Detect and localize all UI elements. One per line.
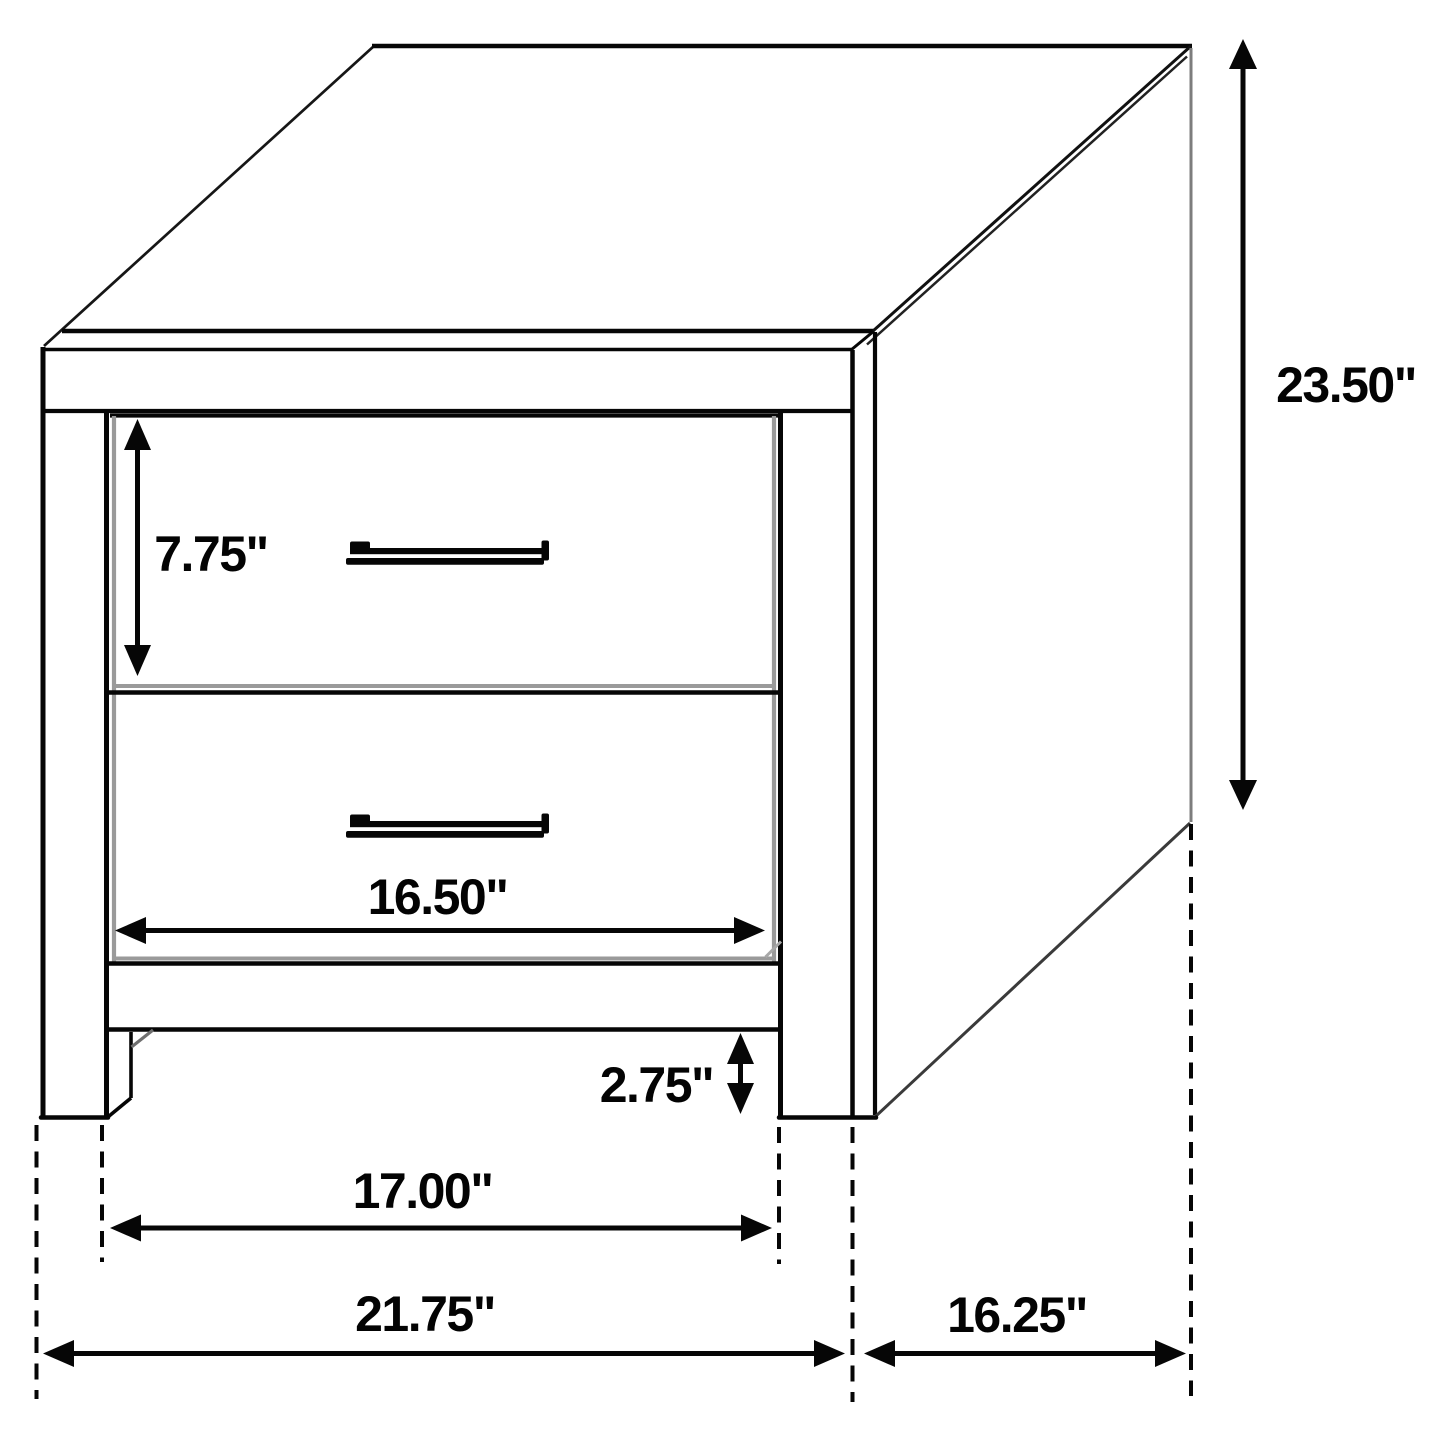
svg-text:17.00": 17.00": [353, 1163, 493, 1219]
svg-text:23.50": 23.50": [1276, 357, 1416, 413]
svg-text:7.75": 7.75": [154, 526, 268, 582]
svg-text:21.75": 21.75": [355, 1286, 495, 1342]
svg-text:16.50": 16.50": [368, 869, 508, 925]
svg-text:16.25": 16.25": [947, 1287, 1087, 1343]
svg-text:2.75": 2.75": [600, 1057, 714, 1113]
